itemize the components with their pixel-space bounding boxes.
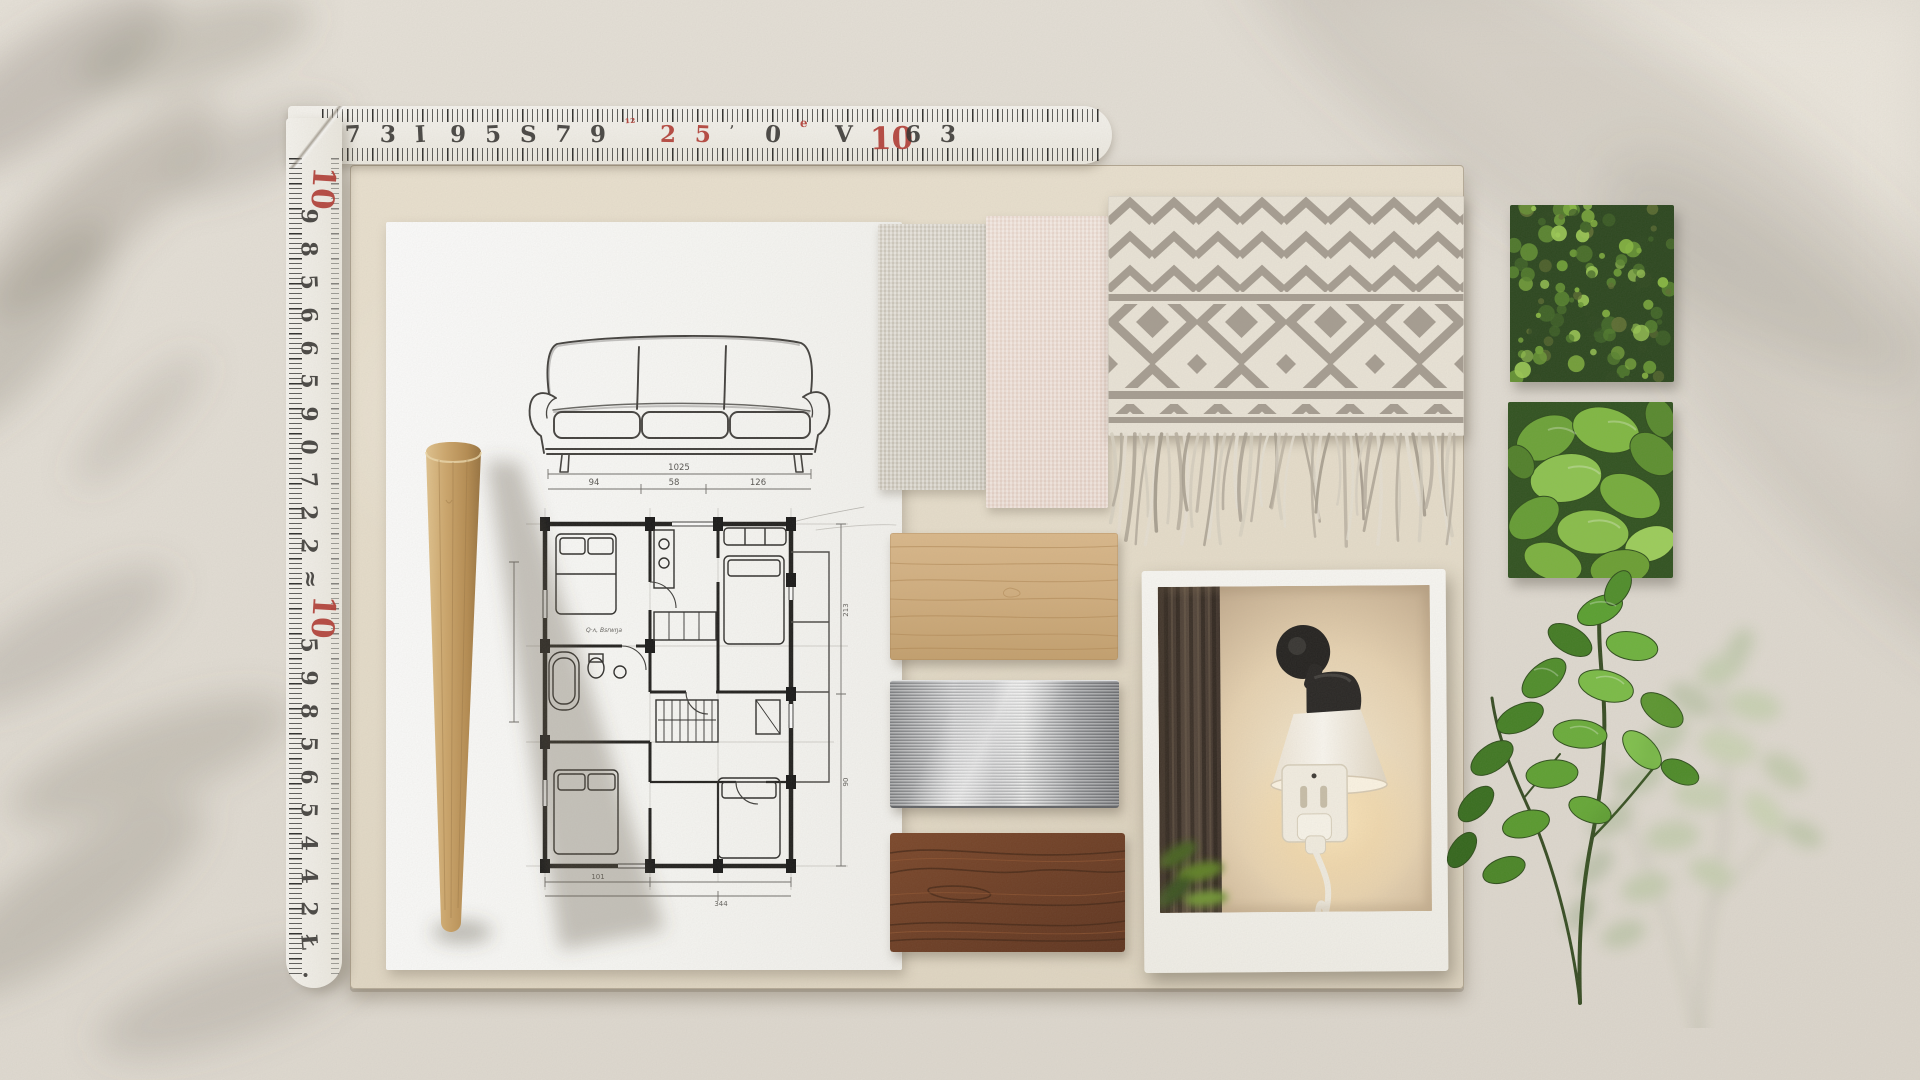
- ruler-v-number: 7: [295, 471, 322, 488]
- carpenter-square-ruler-vertical: 1098566590722≈10598565442Ł·: [286, 118, 342, 988]
- ruler-h-ticks-bottom: [322, 148, 1102, 161]
- ruler-h-number: V: [835, 121, 853, 148]
- ruler-v-number: 5: [296, 373, 322, 389]
- brushed-metal-sample: [890, 680, 1119, 808]
- ruler-v-number: 9: [295, 208, 322, 224]
- oak-wood-sample: [890, 533, 1118, 660]
- ruler-v-number: 2: [295, 505, 322, 522]
- plan-dim-right-b: 90: [842, 778, 850, 787]
- ruler-h-number: 9: [590, 121, 607, 148]
- ruler-h-ticks-top: [322, 109, 1102, 122]
- ruler-v-number: 9: [295, 406, 322, 422]
- wooden-furniture-leg: [415, 440, 505, 940]
- ruler-v-number: 6: [295, 769, 322, 786]
- ruler-v-number: 5: [295, 274, 322, 291]
- ruler-v-number: 4: [296, 835, 322, 851]
- ruler-v-number: 9: [295, 670, 321, 686]
- ruler-v-number: 10: [303, 594, 341, 639]
- carpenter-square-ruler-horizontal: 73I95S79¹²25,0eV1063: [288, 106, 1112, 164]
- ruler-h-number: 3: [379, 121, 396, 149]
- linen-swatch-pink: [986, 216, 1108, 508]
- ruler-v-number: 5: [295, 802, 322, 818]
- ruler-v-number: ·: [292, 971, 318, 979]
- ruler-v-number: 0: [295, 439, 322, 455]
- ruler-v-number: 2: [296, 901, 322, 916]
- ruler-h-number: 3: [939, 121, 957, 149]
- ruler-h-number: 5: [694, 121, 711, 149]
- ruler-h-number: 2: [660, 121, 676, 148]
- ruler-v-number: 6: [295, 306, 322, 323]
- ruler-v-number: 5: [295, 736, 321, 752]
- blanket-fringe: [1108, 432, 1464, 560]
- plant-branch: [1430, 558, 1910, 1028]
- ruler-h-number: 5: [484, 121, 501, 149]
- ruler-h-number: ,: [730, 116, 735, 130]
- ruler-v-number: 8: [295, 241, 321, 257]
- patterned-throw-blanket: [1108, 196, 1464, 436]
- ruler-h-number: 7: [554, 120, 572, 148]
- ruler-v-number: ≈: [297, 569, 324, 589]
- plan-dim-right-a: 213: [842, 603, 850, 616]
- ruler-v-number: 4: [295, 868, 322, 885]
- ruler-v-number: 10: [303, 165, 342, 210]
- ruler-h-number: S: [520, 121, 537, 148]
- ruler-v-number: 2: [295, 538, 322, 555]
- wall-lamp-photo: [1158, 585, 1432, 913]
- ruler-h-number: ¹²: [624, 116, 636, 131]
- walnut-wood-sample: [890, 833, 1125, 952]
- ruler-h-number: 6: [905, 121, 921, 148]
- ruler-v-ticks-right: [331, 158, 339, 978]
- ruler-v-number: 5: [295, 637, 322, 654]
- ruler-h-number: e: [800, 116, 808, 130]
- ruler-h-number: 7: [344, 121, 361, 149]
- outlet: [1282, 765, 1348, 854]
- ruler-v-number: 6: [295, 340, 322, 357]
- leaf-panel: [1508, 402, 1673, 578]
- ruler-v-number: Ł: [295, 933, 322, 950]
- moss-panel: [1510, 205, 1674, 382]
- ruler-h-number: 9: [450, 121, 467, 149]
- ruler-corner-miter: [288, 106, 346, 168]
- linen-swatch-beige: [878, 224, 986, 490]
- leaf-panel-leaves: [1508, 402, 1673, 578]
- mood-board-photo: 1025 94 58 126: [0, 0, 1920, 1080]
- ruler-v-number: 8: [295, 703, 322, 720]
- ruler-h-number: 0: [764, 121, 782, 149]
- lamp-photo-polaroid: [1142, 569, 1449, 973]
- ruler-h-number: I: [414, 121, 426, 149]
